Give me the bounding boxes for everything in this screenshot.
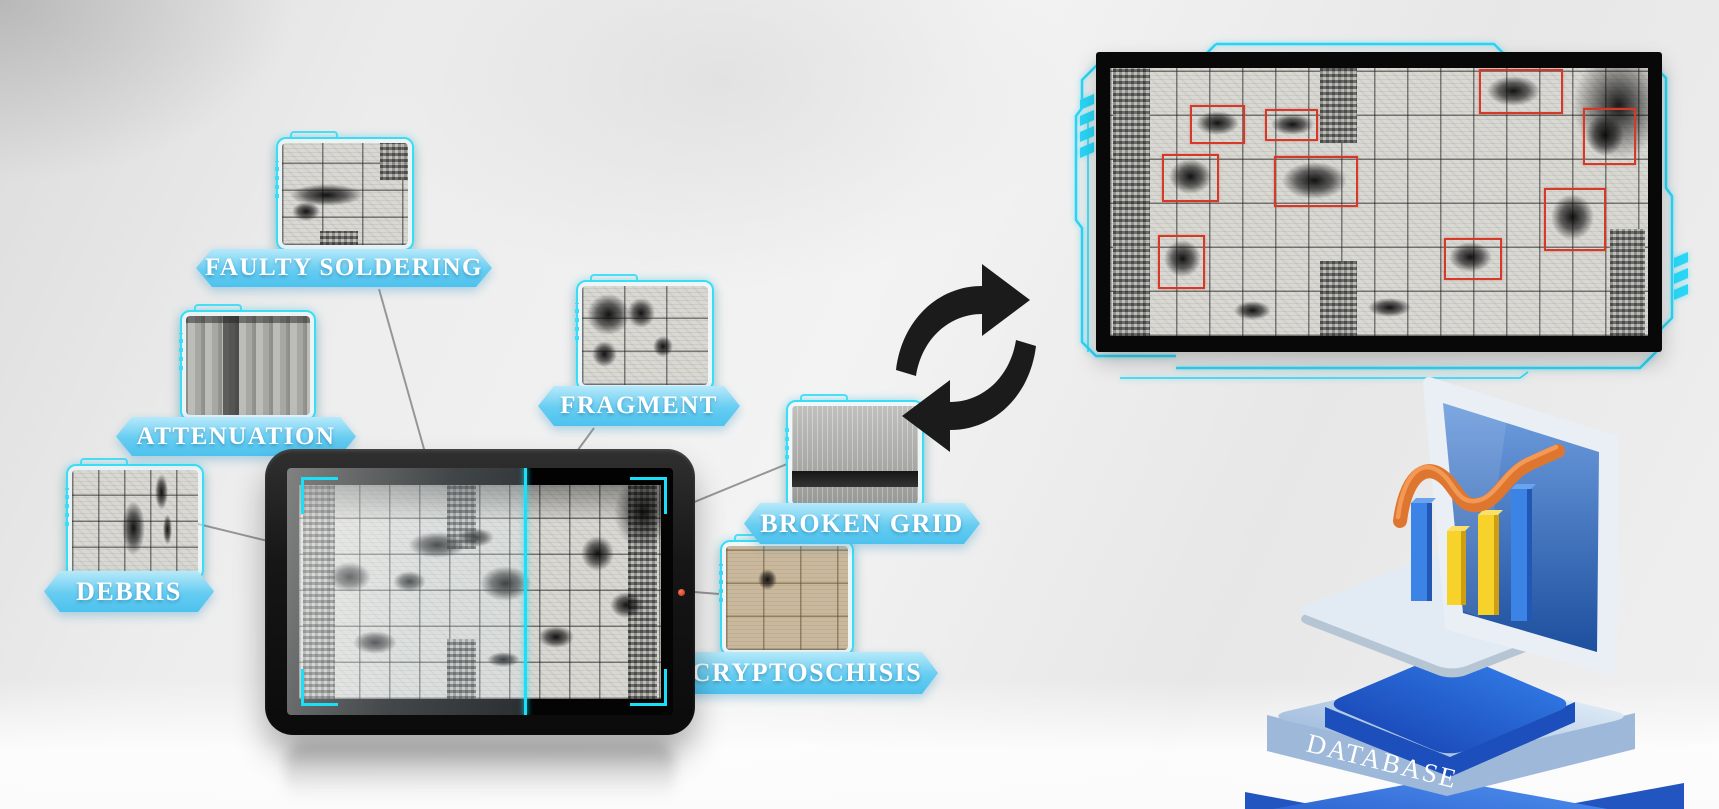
defect-thumbnail-cryptoschisis: [720, 540, 854, 656]
detection-boxes-layer: [1110, 68, 1648, 336]
defect-detection-box: [1479, 69, 1563, 113]
defect-detection-box: [1190, 105, 1245, 144]
defect-label-cryptoschisis: CRYPTOSCHISIS: [676, 652, 938, 694]
defect-thumbnail-broken-grid: [786, 400, 924, 510]
tablet-reflection: [285, 742, 675, 800]
tablet-screen: [287, 468, 673, 715]
defect-label-broken-grid: BROKEN GRID: [744, 503, 980, 544]
tablet-device: [265, 449, 695, 735]
defect-detection-box: [1583, 108, 1636, 166]
focus-bracket-icon: [630, 669, 667, 706]
defect-thumbnail-attenuation: [180, 310, 316, 421]
defect-label-fragment: FRAGMENT: [538, 386, 740, 426]
defect-thumbnail-debris: [66, 464, 204, 580]
focus-bracket-icon: [301, 477, 338, 514]
defect-detection-box: [1265, 109, 1318, 142]
floor-reflection: [0, 679, 1719, 809]
defect-detection-box: [1158, 235, 1205, 290]
defect-detection-box: [1274, 156, 1358, 207]
defect-detection-box: [1544, 188, 1606, 251]
defect-detection-box: [1162, 154, 1219, 202]
defect-thumbnail-faulty-soldering: [276, 137, 414, 251]
defect-detection-box: [1444, 238, 1503, 281]
defect-label-faulty-soldering: FAULTY SOLDERING: [196, 249, 492, 287]
defect-thumbnail-fragment: [576, 280, 714, 391]
focus-bracket-icon: [630, 477, 667, 514]
tablet-camera: [678, 589, 685, 596]
detected-el-panel-image: [1110, 68, 1648, 336]
defect-label-debris: DEBRIS: [44, 571, 214, 612]
focus-bracket-icon: [301, 669, 338, 706]
scan-line: [524, 468, 527, 715]
detection-result-panel: [1096, 52, 1662, 352]
solar-defect-detection-infographic: FAULTY SOLDERING ATTENUATION DEBRIS FRAG…: [0, 0, 1719, 809]
